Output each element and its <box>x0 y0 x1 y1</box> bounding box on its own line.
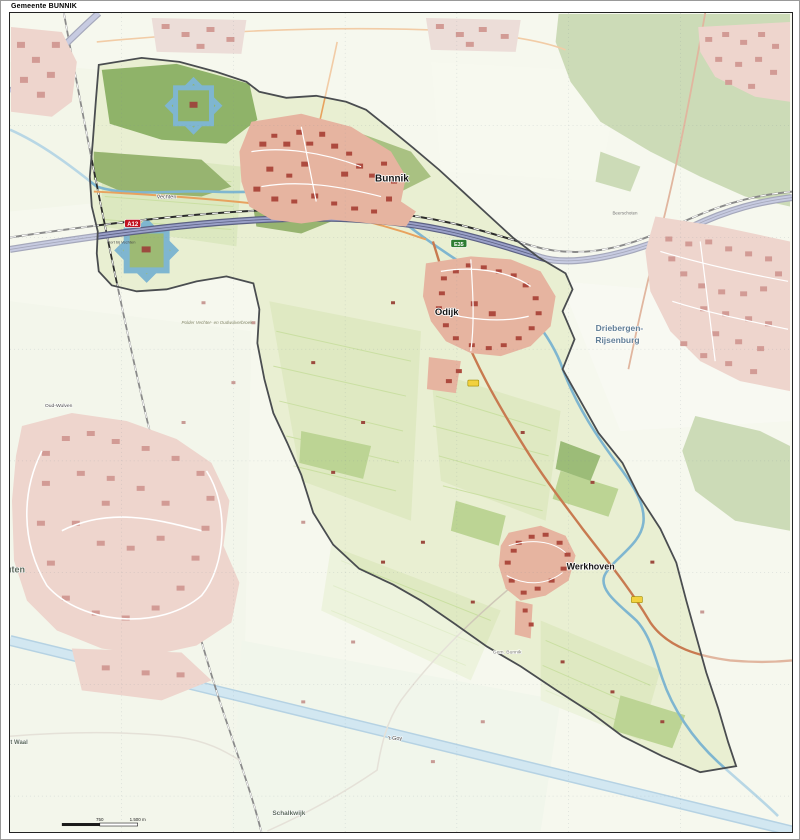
label-driebergen-line1: Driebergen- <box>596 323 644 333</box>
fort-rijnauwen <box>168 80 219 131</box>
scale-end-label: 1.500 m <box>130 817 146 822</box>
label-houten-partial: uten <box>10 565 25 575</box>
label-fort-vechten: Fort bij Vechten <box>108 239 136 244</box>
a12-shield-label: A12 <box>127 222 139 228</box>
label-gem-bunnik: Gem. Bunnik <box>493 649 522 655</box>
label-t-goy: 't Goy <box>388 736 402 742</box>
scale-mid-label: 750 <box>96 817 104 822</box>
label-bunnik: Bunnik <box>375 174 409 185</box>
eroad-shield-e35: E35 <box>451 239 467 247</box>
label-odijk: Odijk <box>435 307 459 318</box>
motorway-shield-a12: A12 <box>125 219 141 227</box>
label-schalkwijk: Schalkwijk <box>272 810 305 817</box>
map-page: Gemeente BUNNIK <box>0 0 800 840</box>
page-title: Gemeente BUNNIK <box>11 3 77 10</box>
label-vechten: Vechten <box>157 195 177 201</box>
road-shield-yellow-1 <box>468 380 479 386</box>
e35-shield-label: E35 <box>454 242 464 248</box>
topographic-map: A12 E35 Bunnik Odijk Werkhoven Drieberge… <box>10 13 792 832</box>
road-shield-yellow-2 <box>631 597 642 603</box>
label-driebergen-line2: Rijsenburg <box>595 335 639 345</box>
map-canvas: A12 E35 Bunnik Odijk Werkhoven Drieberge… <box>9 12 793 833</box>
label-beerschoten: Beerschoten <box>612 211 638 216</box>
label-werkhoven: Werkhoven <box>567 562 615 572</box>
label-oud-wulven: Oud-Wulven <box>45 403 73 409</box>
label-t-waal: 't Waal <box>10 740 28 746</box>
label-polder-vechter: Polder Vechter- en Oudwulverbroek <box>182 320 254 325</box>
